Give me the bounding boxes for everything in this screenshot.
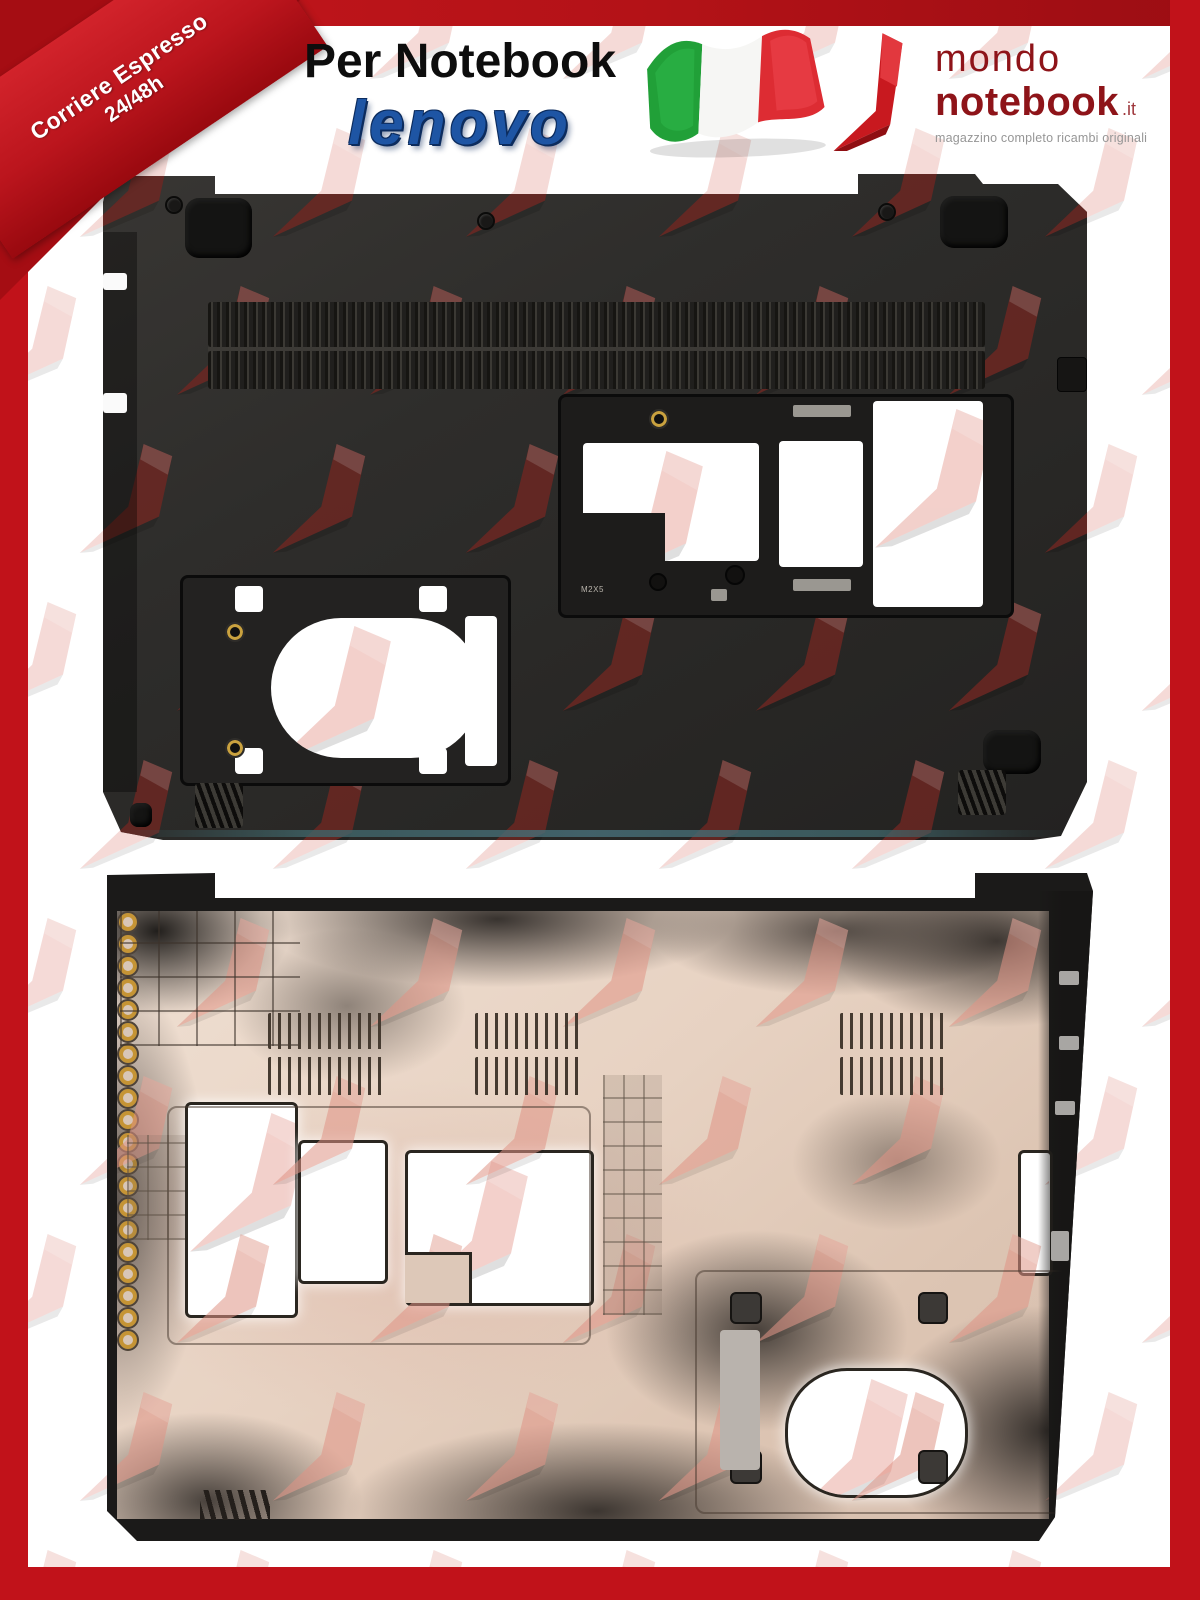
hdd-compartment-opening	[180, 575, 511, 786]
service-compartment-opening: M2X5	[558, 394, 1014, 618]
cutout-step	[405, 1252, 472, 1303]
rubber-foot	[185, 198, 252, 258]
rib-checker	[603, 1075, 662, 1315]
hdd-pad	[730, 1292, 762, 1324]
screw-hole	[477, 212, 495, 230]
rim-port-cell	[1059, 971, 1079, 985]
hdd-cutout-oval	[271, 618, 481, 758]
vent-slots-row	[208, 351, 985, 389]
speaker-grille	[200, 1490, 270, 1520]
vent-slots	[840, 1057, 950, 1095]
cutout-window	[873, 401, 983, 607]
connector-cutout	[465, 616, 497, 766]
ram-clip	[793, 405, 851, 417]
side-wall-shadow	[103, 232, 137, 792]
hdd-pad	[918, 1450, 948, 1484]
latch-notch	[1057, 357, 1087, 392]
product-photo-exterior-bottom-case: M2X5	[103, 172, 1087, 840]
screw-hole	[878, 203, 896, 221]
vent-slots	[268, 1013, 383, 1049]
vent-slots	[840, 1013, 950, 1049]
vent-slots	[475, 1057, 585, 1095]
corner-tab-cutout	[235, 586, 263, 612]
rubber-foot	[130, 803, 152, 827]
cutout-window	[779, 441, 863, 567]
gold-screw	[225, 622, 245, 642]
frame-bottom-bar	[0, 1567, 1200, 1600]
store-logo-tld: .it	[1122, 99, 1136, 120]
hdd-rail-pad	[720, 1330, 760, 1470]
screw-hole	[649, 573, 667, 591]
product-listing-image: M2X5	[0, 0, 1200, 1600]
screw-hole	[725, 565, 745, 585]
gold-screw	[649, 409, 669, 429]
clip	[711, 589, 727, 601]
ram-clip	[793, 579, 851, 591]
rim-port-cell	[1055, 1101, 1075, 1115]
rib-checker	[127, 1135, 185, 1240]
speaker-grille	[958, 770, 1006, 815]
rim-port-cell	[1051, 1231, 1069, 1261]
corner-tab-cutout	[419, 586, 447, 612]
store-tagline: magazzino completo ricambi originali	[935, 131, 1163, 145]
side-port-cutout	[103, 393, 127, 413]
vent-slots	[268, 1057, 383, 1095]
compartment-wall	[167, 1106, 591, 1345]
hdd-pad	[918, 1292, 948, 1324]
rubber-foot	[940, 196, 1008, 248]
store-logo: mondo notebook .it magazzino completo ri…	[935, 40, 1163, 145]
mondonotebook-swoosh-icon	[818, 28, 918, 163]
interior-surface	[117, 911, 1049, 1519]
rim-port-cell	[1059, 1036, 1079, 1050]
vent-slots	[475, 1013, 585, 1049]
rubber-foot	[983, 730, 1041, 774]
speaker-grille	[195, 783, 243, 828]
store-logo-word2: notebook	[935, 80, 1119, 124]
edge-highlight	[117, 830, 1067, 837]
side-port-cutout	[103, 273, 127, 290]
vent-slots-row	[208, 302, 985, 347]
store-logo-word1: mondo	[935, 40, 1163, 80]
screw-hole	[165, 196, 183, 214]
frame-right-bar	[1170, 0, 1200, 1600]
italy-flag-icon	[634, 22, 844, 164]
cutout-notch	[583, 513, 665, 561]
frame-left-bar	[0, 0, 28, 1600]
gold-screw	[225, 738, 245, 758]
frame-top-bar	[0, 0, 1200, 26]
corner-tab-cutout	[419, 748, 447, 774]
product-photo-interior-bottom-case	[103, 871, 1093, 1543]
screw-size-marking: M2X5	[581, 585, 604, 594]
